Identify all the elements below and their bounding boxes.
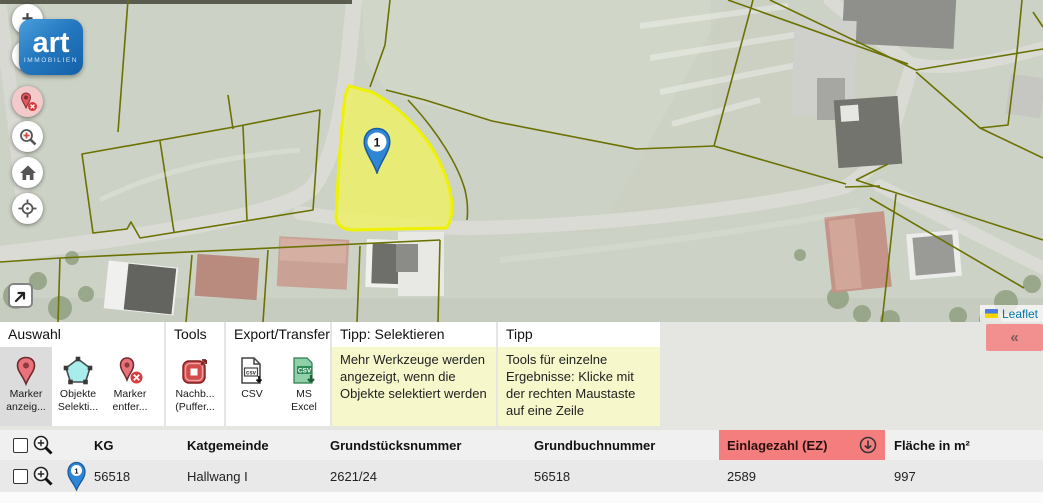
cell-flaeche: 997	[894, 469, 1043, 484]
aerial-map-canvas[interactable]	[0, 0, 1043, 322]
row-zoom-button[interactable]	[28, 465, 58, 487]
col-header-kg[interactable]: KG	[94, 438, 187, 453]
tip-text: Mehr Werkzeuge werden angezeigt, wenn di…	[332, 347, 496, 426]
select-all-checkbox[interactable]	[13, 438, 28, 453]
logo-subtext: IMMOBILIEN	[24, 57, 78, 64]
table-footer-spacer	[0, 492, 1043, 503]
col-header-grundbuchnummer[interactable]: Grundbuchnummer	[534, 438, 719, 453]
svg-text:1: 1	[74, 466, 78, 475]
home-icon	[19, 164, 37, 182]
map-attribution: Leaflet	[980, 305, 1043, 322]
section-title: Export/Transfer	[226, 322, 330, 347]
marker-anzeigen-button[interactable]: Marker anzeig...	[0, 347, 52, 426]
gis-app-window: 1 + − art IMMOBILIEN	[0, 0, 1043, 503]
svg-text:CSV: CSV	[298, 367, 312, 374]
home-button[interactable]	[12, 157, 43, 188]
marker-icon	[14, 354, 38, 388]
tip-text: Tools für einzelne Ergebnisse: Klicke mi…	[498, 347, 660, 426]
section-title: Tools	[166, 322, 224, 347]
row-marker-icon[interactable]: 1	[66, 461, 87, 491]
cell-katgemeinde: Hallwang I	[187, 469, 330, 484]
excel-export-button[interactable]: CSV MS Excel	[278, 347, 330, 426]
marker-number: 1	[374, 136, 381, 150]
cell-grundstuecksnummer: 2621/24	[330, 469, 534, 484]
cell-einlagezahl: 2589	[719, 460, 894, 492]
section-title: Tipp: Selektieren	[332, 322, 496, 347]
col-header-flaeche[interactable]: Fläche in m²	[894, 438, 1043, 453]
zoom-search-icon	[18, 127, 38, 147]
expand-map-button[interactable]	[8, 283, 33, 308]
collapse-panel-button[interactable]: «	[986, 324, 1043, 351]
row-checkbox[interactable]	[13, 469, 28, 484]
locate-icon	[18, 199, 37, 218]
remove-markers-button[interactable]	[12, 86, 43, 117]
toolbar-section-tip-selektieren: Tipp: Selektieren Mehr Werkzeuge werden …	[332, 322, 496, 426]
toolbar-section-auswahl: Auswahl Marker anzeig...	[0, 322, 164, 426]
remove-markers-icon	[18, 92, 38, 112]
locate-button[interactable]	[12, 193, 43, 224]
results-table-header: KG Katgemeinde Grundstücksnummer Grundbu…	[0, 430, 1043, 460]
cell-kg: 56518	[94, 469, 187, 484]
buffer-tool-icon	[181, 354, 209, 388]
col-header-einlagezahl[interactable]: Einlagezahl (EZ)	[719, 430, 894, 460]
toolbar-section-export: Export/Transfer csv CSV	[226, 322, 330, 426]
zoom-to-selection-button[interactable]	[12, 121, 43, 152]
zoom-plus-icon	[32, 434, 54, 456]
polygon-select-icon	[63, 354, 93, 388]
objekte-selektieren-button[interactable]: Objekte Selekti...	[52, 347, 104, 426]
section-title: Tipp	[498, 322, 660, 347]
sort-down-circle-icon[interactable]	[859, 436, 877, 454]
csv-download-icon: csv	[239, 354, 265, 388]
excel-download-icon: CSV	[291, 354, 317, 388]
toolbar-section-tools: Tools Nachb... (Puffer...	[166, 322, 224, 426]
map-viewport[interactable]: 1 + − art IMMOBILIEN	[0, 0, 1043, 322]
marker-remove-icon	[116, 354, 144, 388]
results-table-row[interactable]: 1 56518 Hallwang I 2621/24 56518 2589 99…	[0, 460, 1043, 492]
col-header-grundstuecksnummer[interactable]: Grundstücksnummer	[330, 438, 534, 453]
toolbar-section-tip: Tipp Tools für einzelne Ergebnisse: Klic…	[498, 322, 660, 426]
zoom-all-button[interactable]	[28, 434, 58, 456]
map-marker-1[interactable]: 1	[362, 127, 392, 174]
col-header-katgemeinde[interactable]: Katgemeinde	[187, 438, 330, 453]
csv-export-button[interactable]: csv CSV	[226, 347, 278, 426]
ukraine-flag-icon	[985, 309, 998, 318]
cell-grundbuchnummer: 56518	[534, 469, 719, 484]
section-title: Auswahl	[0, 322, 164, 347]
expand-arrow-icon	[14, 289, 28, 303]
art-immobilien-logo: art IMMOBILIEN	[19, 19, 83, 75]
marker-entfernen-button[interactable]: Marker entfer...	[104, 347, 156, 426]
leaflet-link[interactable]: Leaflet	[1002, 307, 1038, 321]
zoom-plus-icon	[32, 465, 54, 487]
nachbarn-puffer-button[interactable]: Nachb... (Puffer...	[169, 347, 221, 426]
logo-text: art	[32, 30, 69, 56]
svg-text:csv: csv	[246, 370, 257, 376]
